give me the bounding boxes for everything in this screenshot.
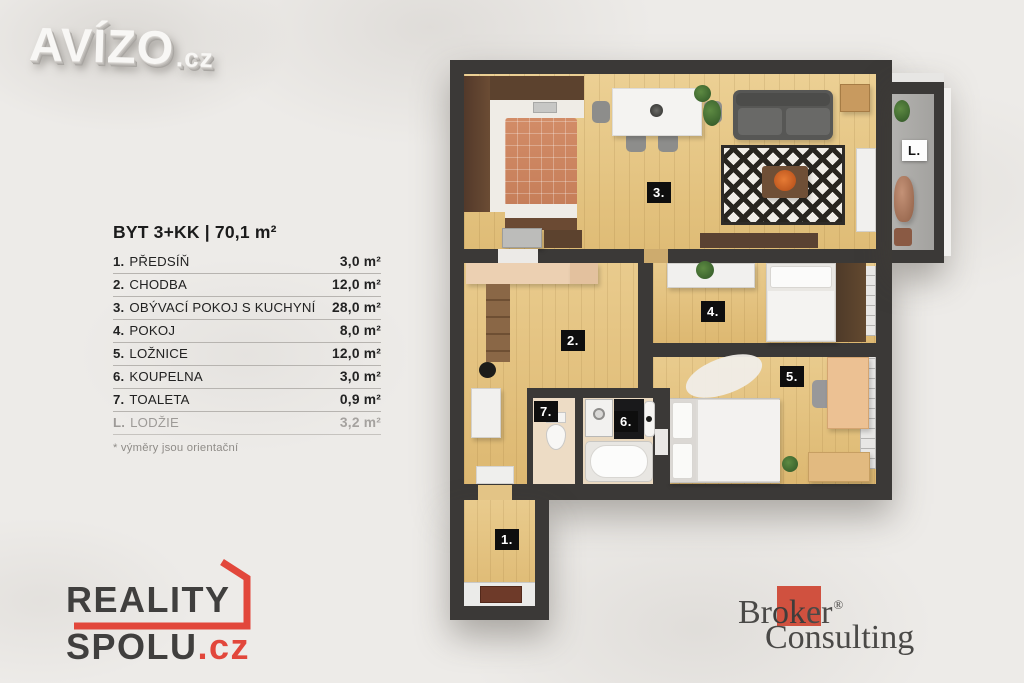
hall-bag xyxy=(479,362,496,378)
living-cabinet xyxy=(856,148,876,232)
loggia-glazing xyxy=(892,73,944,82)
legend-row-4: 4.POKOJ8,0 m² xyxy=(113,320,381,343)
room-label-3: 3. xyxy=(647,182,671,203)
plant-loggia xyxy=(894,100,910,122)
side-table xyxy=(840,84,870,112)
legend-row-3: 3.OBÝVACÍ POKOJ S KUCHYNÍ28,0 m² xyxy=(113,297,381,320)
plant-dining xyxy=(694,85,711,102)
reality-spolu-tld: .cz xyxy=(198,626,251,667)
reality-spolu-line2: SPOLU.cz xyxy=(66,629,250,665)
room-label-2: 2. xyxy=(561,330,585,351)
living-hall-door xyxy=(498,249,538,263)
hall-entry-doorway xyxy=(478,485,512,500)
bathtub-basin xyxy=(590,445,648,478)
coffee-table-flowers xyxy=(774,170,796,191)
bathroom-wall-left xyxy=(527,398,533,484)
legend-row-7: 7.TOALETA0,9 m² xyxy=(113,389,381,412)
legend-row-1: 1.PŘEDSÍŇ3,0 m² xyxy=(113,251,381,274)
bathroom-wall-mid xyxy=(575,398,583,484)
kitchen-counter-bottom xyxy=(505,204,577,218)
sofa-cushion-2 xyxy=(786,108,830,135)
hall-cabinet-small xyxy=(570,263,598,284)
kitchen-cabinet-2 xyxy=(544,230,582,248)
bathroom-wall-top xyxy=(527,388,670,398)
room4-bed-pillow xyxy=(770,266,832,288)
reality-spolu-line1: REALITY xyxy=(66,582,250,618)
avizo-logo-text: AVÍZO xyxy=(28,17,175,74)
room-label-4: 4. xyxy=(701,301,725,322)
room-label-5: 5. xyxy=(780,366,804,387)
broker-line2: Consulting xyxy=(765,621,914,655)
legend-row-6: 6.KOUPELNA3,0 m² xyxy=(113,366,381,389)
legend-footnote: * výměry jsou orientační xyxy=(113,442,381,454)
room4-wardrobe xyxy=(836,263,866,342)
plant-room5 xyxy=(782,456,798,472)
table-centerpiece xyxy=(650,104,663,117)
washing-machine-door xyxy=(593,408,605,420)
screenshot-root: { "colors": { "background": "#edebe8", "… xyxy=(0,0,1024,683)
plant-room4-desk xyxy=(696,261,714,279)
hall-wardrobe xyxy=(466,263,570,284)
room-legend: BYT 3+KK | 70,1 m² 1.PŘEDSÍŇ3,0 m² 2.CHO… xyxy=(113,222,381,454)
loggia-vase xyxy=(894,176,914,222)
hall-door-leaf xyxy=(476,466,514,484)
kitchen-tile-floor xyxy=(505,118,577,206)
avizo-logo: AVÍZO.cz xyxy=(28,16,212,76)
sofa-backrest xyxy=(736,93,830,106)
tv-sideboard xyxy=(700,233,818,248)
room5-door xyxy=(655,429,668,455)
bath-faucet xyxy=(646,416,652,422)
hall-shelf-unit xyxy=(486,284,510,362)
avizo-logo-tld: .cz xyxy=(176,42,215,73)
room-label-7: 7. xyxy=(534,401,558,422)
loggia-outer-rail xyxy=(944,88,951,256)
kitchen-left-cabinets xyxy=(464,76,490,212)
plant-sofa-left xyxy=(703,100,721,126)
room5-pillow-2 xyxy=(672,443,693,479)
legend-row-5: 5.LOŽNICE12,0 m² xyxy=(113,343,381,366)
room5-pillow-1 xyxy=(672,402,693,439)
room4-door-opening xyxy=(644,249,668,263)
legend-row-2: 2.CHODBA12,0 m² xyxy=(113,274,381,297)
legend-row-loggia: L.LODŽIE3,2 m² xyxy=(113,412,381,435)
room5-duvet xyxy=(696,400,780,481)
room-label-6: 6. xyxy=(614,411,638,432)
doormat xyxy=(480,586,522,603)
kitchen-sink xyxy=(533,102,557,113)
loggia-stool xyxy=(894,228,912,246)
legend-title: BYT 3+KK | 70,1 m² xyxy=(113,222,381,243)
broker-consulting-logo: Broker® Consulting xyxy=(738,586,978,666)
room4-bed-duvet xyxy=(768,291,834,340)
room5-bench xyxy=(808,452,870,482)
broker-registered-mark: ® xyxy=(833,597,843,612)
dining-chair-left xyxy=(592,101,610,123)
room5-desk xyxy=(827,357,869,429)
room-label-1: 1. xyxy=(495,529,519,550)
sofa-cushion-1 xyxy=(738,108,782,135)
fridge xyxy=(502,228,542,248)
hall-sideboard xyxy=(471,388,501,438)
room-label-loggia: L. xyxy=(902,140,927,161)
